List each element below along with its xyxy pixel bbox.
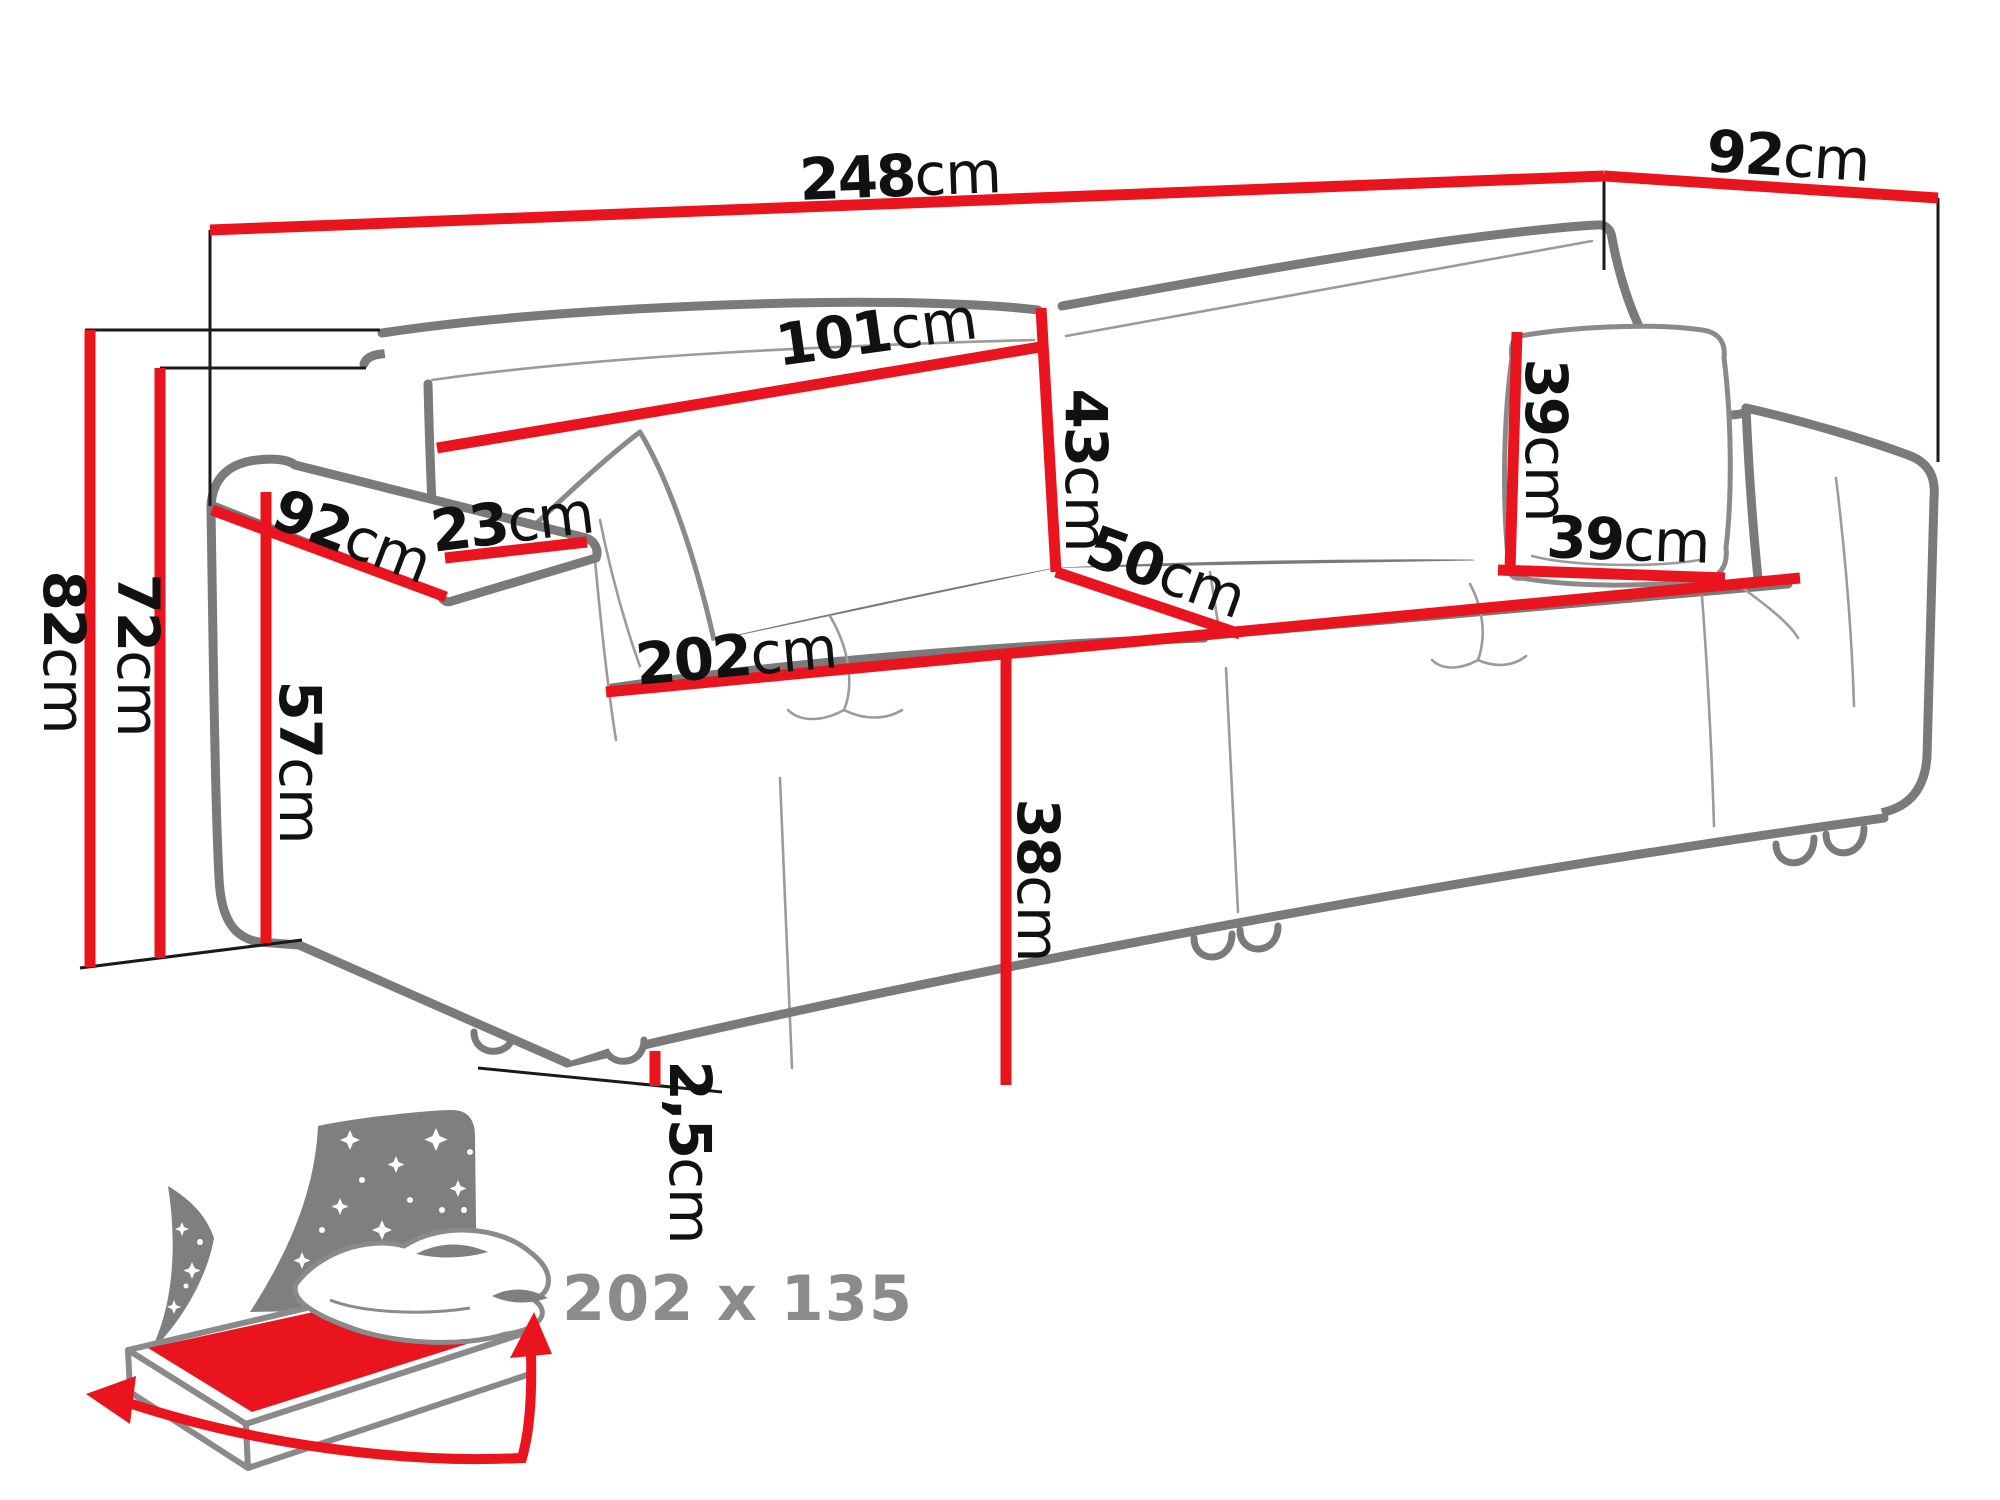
leg-right-a [1776,838,1814,863]
leg-right-b [1826,828,1864,853]
label-pillow-width: 39cm [1545,503,1710,577]
label-leg-clearance: 2,5cm [656,1060,724,1243]
label-total-height: 82cm [30,570,98,733]
label-back-height: 72cm [104,573,172,736]
ext-floor-left [80,940,302,968]
leg-center-b [1240,926,1278,949]
label-overall-width: 248cm [798,138,1002,214]
label-total-depth: 92cm [1704,117,1871,195]
label-armrest-height: 57cm [266,680,334,843]
sofa-dimension-diagram: 248cm 92cm 101cm 43cm 39cm 39cm 92cm 23c… [0,0,2000,1500]
sleeping-function-icon: 202 x 135 [86,1110,913,1468]
sleeping-area-size: 202 x 135 [562,1262,913,1335]
label-pillow-height: 39cm [1512,358,1580,521]
sofa-dimension-diagram-page: 248cm 92cm 101cm 43cm 39cm 39cm 92cm 23c… [0,0,2000,1500]
night-sky-crescent [150,1186,214,1352]
leg-center-a [1194,934,1232,957]
label-seat-height: 38cm [1004,798,1072,961]
